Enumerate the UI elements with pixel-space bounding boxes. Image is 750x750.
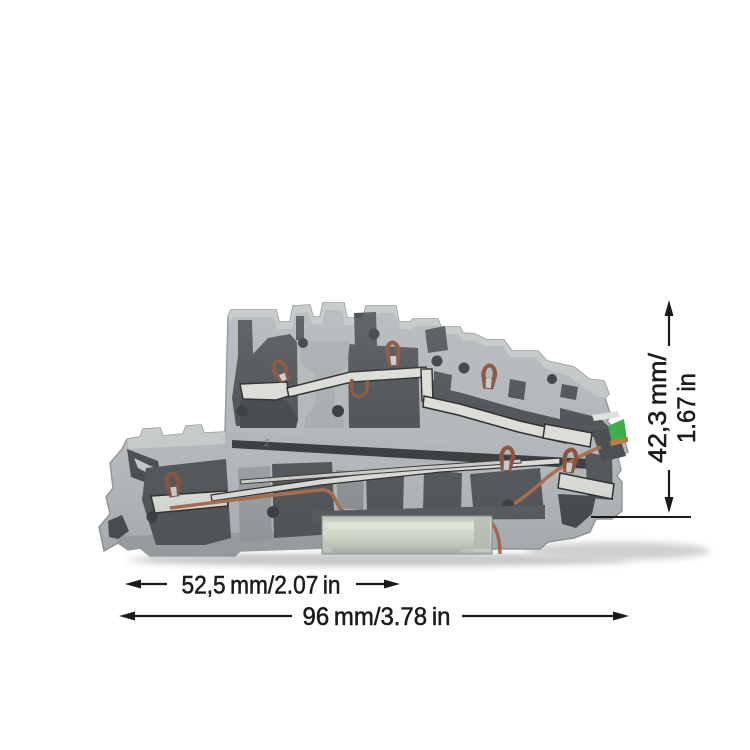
svg-text:1.67 in: 1.67 in [673, 373, 701, 443]
svg-text:42,3 mm/: 42,3 mm/ [644, 353, 672, 463]
svg-text:52,5 mm/2.07 in: 52,5 mm/2.07 in [182, 572, 341, 600]
svg-text:96 mm/3.78 in: 96 mm/3.78 in [303, 603, 451, 631]
